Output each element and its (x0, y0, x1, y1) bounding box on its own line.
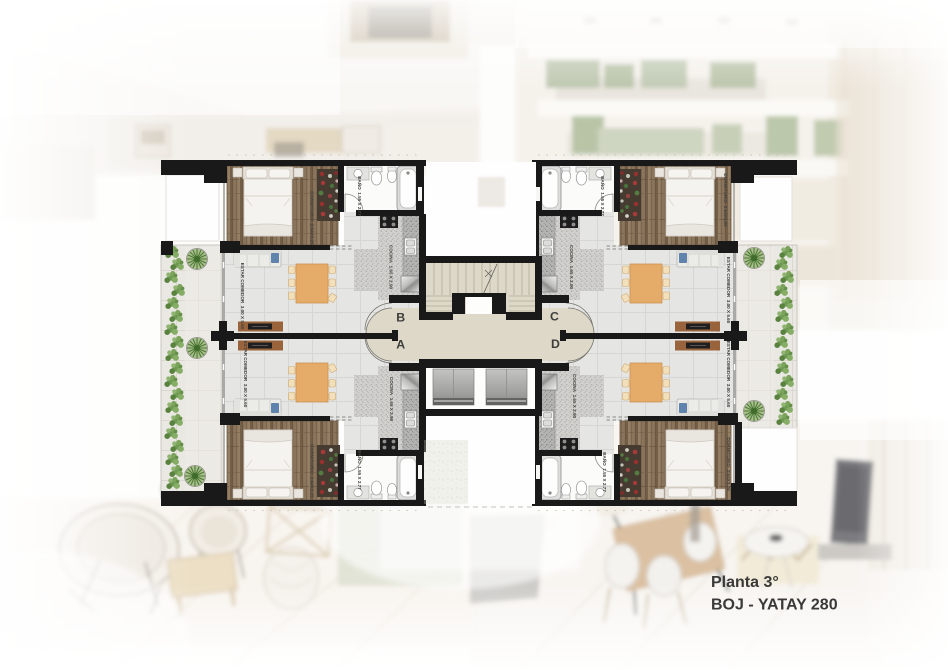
svg-text:B: B (396, 311, 405, 325)
svg-text:Planta 3°: Planta 3° (711, 574, 779, 591)
svg-text:DORMITORIO 2.64X3.25: DORMITORIO 2.64X3.25 (723, 173, 728, 227)
svg-text:DORMITORIO 2.64X3.25: DORMITORIO 2.64X3.25 (310, 444, 315, 498)
svg-text:BAÑO 1.55 X 2.77: BAÑO 1.55 X 2.77 (357, 176, 363, 216)
svg-text:COCINA 1.65 X 2.90: COCINA 1.65 X 2.90 (389, 377, 394, 422)
svg-text:ESTAR COMEDOR 3.00 X 5.60: ESTAR COMEDOR 3.00 X 5.60 (240, 263, 245, 330)
svg-text:DORMITORIO 2.64X3.25: DORMITORIO 2.64X3.25 (310, 191, 315, 245)
svg-text:BAÑO 1.55 X 2.77: BAÑO 1.55 X 2.77 (600, 176, 606, 216)
svg-text:COCINA 1.65 X 2.90: COCINA 1.65 X 2.90 (569, 245, 574, 290)
svg-text:ESTAR COMEDOR 3.00 X 5.60: ESTAR COMEDOR 3.00 X 5.60 (726, 257, 731, 324)
svg-text:A: A (396, 338, 405, 352)
svg-text:BOJ - YATAY 280: BOJ - YATAY 280 (711, 597, 838, 614)
svg-text:COCINA 1.65 X 2.90: COCINA 1.65 X 2.90 (389, 245, 394, 290)
svg-text:C: C (550, 310, 559, 324)
svg-text:ESTAR COMEDOR 3.00 X 5.60: ESTAR COMEDOR 3.00 X 5.60 (243, 341, 248, 408)
svg-text:DORMITORIO 2.64X3.25: DORMITORIO 2.64X3.25 (726, 437, 731, 491)
svg-text:BAÑO 1.55 X 2.77: BAÑO 1.55 X 2.77 (357, 450, 363, 490)
svg-text:ESTAR COMEDOR 3.00 X 5.60: ESTAR COMEDOR 3.00 X 5.60 (726, 341, 731, 408)
svg-text:D: D (551, 337, 560, 351)
svg-text:COCINA 1.65 X 2.90: COCINA 1.65 X 2.90 (572, 374, 577, 419)
svg-text:BAÑO 1.55 X 2.77: BAÑO 1.55 X 2.77 (602, 452, 608, 492)
